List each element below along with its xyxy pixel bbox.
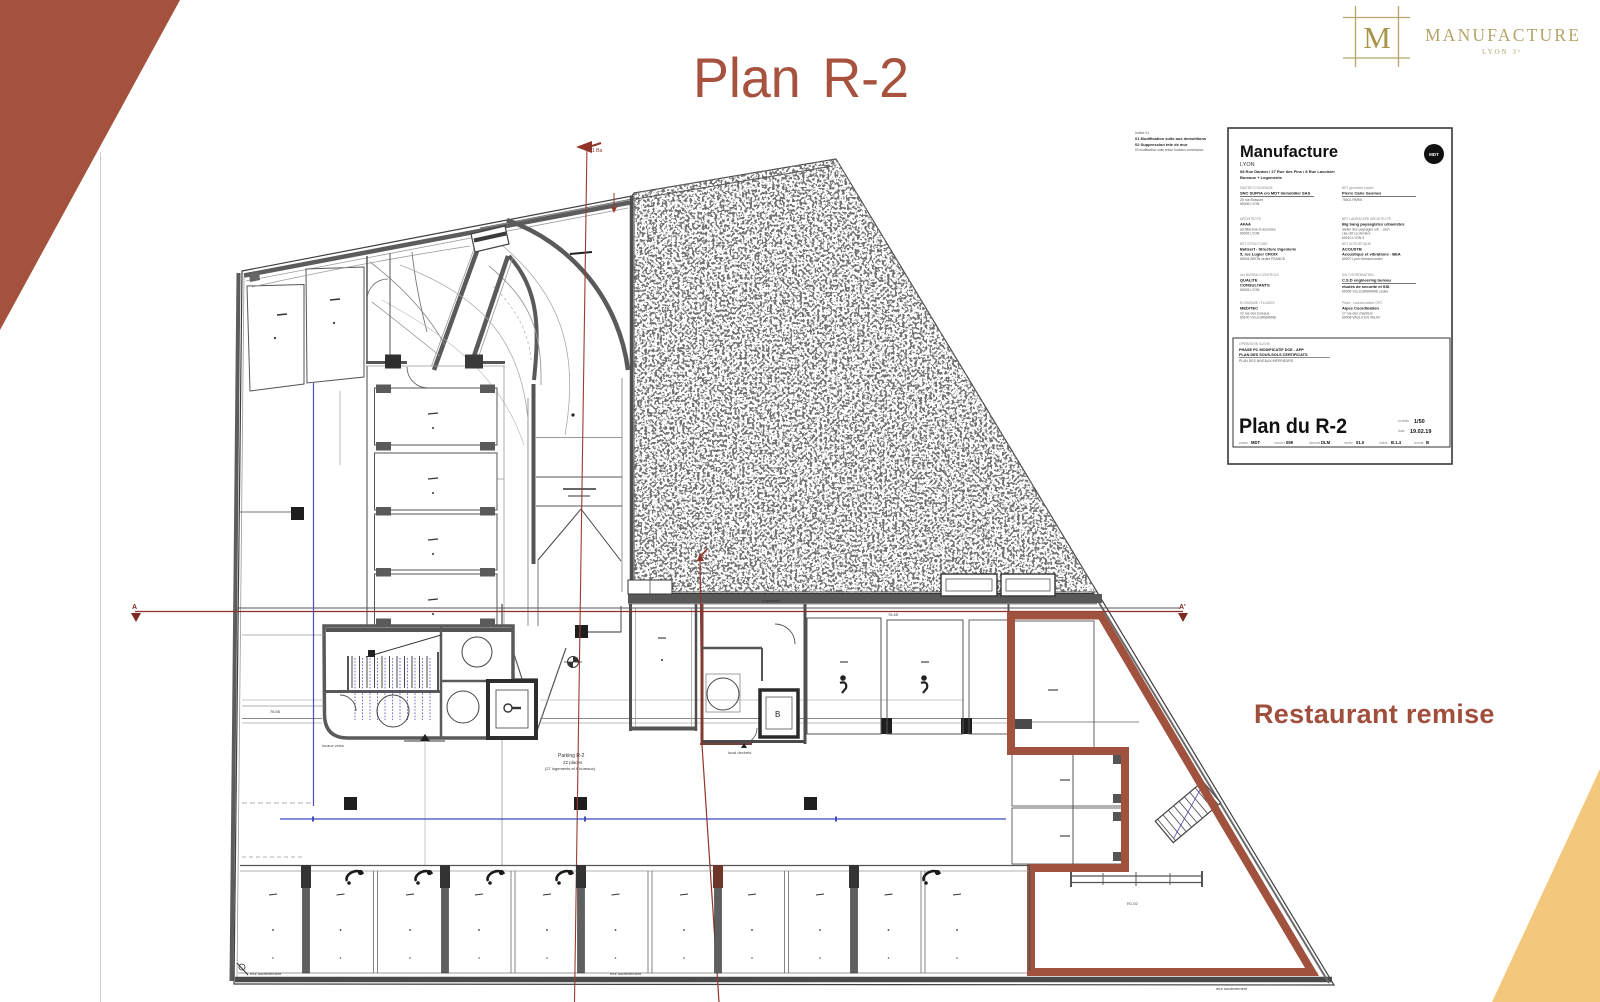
svg-text:03 modification suite retour b: 03 modification suite retour bureaux com… — [1135, 148, 1204, 152]
svg-text:22 places: 22 places — [563, 760, 583, 765]
svg-text:69004 BRON cedex FRANCE: 69004 BRON cedex FRANCE — [1240, 257, 1286, 261]
svg-text:MANUFACTURE: MANUFACTURE — [1425, 25, 1581, 45]
svg-text:1/50: 1/50 — [1414, 419, 1425, 425]
svg-text:69003 LYON: 69003 LYON — [1240, 288, 1260, 292]
svg-text:locaux velos: locaux velos — [322, 743, 344, 748]
svg-text:C.S.D engineering bureau: C.S.D engineering bureau — [1342, 278, 1391, 283]
svg-text:BET geometre expert: BET geometre expert — [1342, 186, 1373, 190]
svg-text:02 Suppression tete de mur: 02 Suppression tete de mur — [1135, 142, 1188, 147]
svg-text:1 Ba: 1 Ba — [592, 148, 603, 154]
svg-text:Plan du R-2: Plan du R-2 — [1239, 415, 1347, 438]
svg-text:BET ACOUSTIQUE: BET ACOUSTIQUE — [1342, 242, 1372, 246]
svg-text:mur soutenement: mur soutenement — [610, 971, 642, 976]
svg-text:75001 PARIS: 75001 PARIS — [1342, 198, 1363, 202]
svg-text:xxx BUREAU CONTROLE: xxx BUREAU CONTROLE — [1240, 273, 1280, 277]
svg-text:76.45: 76.45 — [888, 612, 899, 617]
svg-text:Pierre Caire Geomes: Pierre Caire Geomes — [1342, 191, 1382, 196]
svg-text:ARCHITECTE: ARCHITECTE — [1240, 217, 1262, 221]
svg-text:BET LANDSCAPE ARCHITECTE: BET LANDSCAPE ARCHITECTE — [1342, 217, 1392, 221]
svg-text:01.0: 01.0 — [1356, 440, 1365, 445]
svg-text:69005 VILLEURBANNE cedex: 69005 VILLEURBANNE cedex — [1342, 290, 1388, 294]
svg-text:SSI COORDINATION: SSI COORDINATION — [1342, 273, 1374, 277]
svg-text:mur soutenement: mur soutenement — [250, 971, 282, 976]
svg-text:phase: phase — [1239, 441, 1248, 445]
svg-text:69008 VAULX EN VELIN: 69008 VAULX EN VELIN — [1342, 316, 1380, 320]
svg-text:PLAN DES SOUS-SOLS CERTIFICATS: PLAN DES SOUS-SOLS CERTIFICATS — [1239, 353, 1308, 357]
svg-text:format: format — [1414, 441, 1423, 445]
svg-text:mur soutenement: mur soutenement — [1216, 986, 1248, 991]
svg-text:numero: numero — [1274, 441, 1285, 445]
svg-text:69100 VILLEURBANNE: 69100 VILLEURBANNE — [1240, 316, 1277, 320]
svg-text:LYON: LYON — [1240, 162, 1255, 168]
svg-text:surpresseur: surpresseur — [762, 599, 781, 603]
svg-text:76.55: 76.55 — [270, 709, 281, 714]
svg-text:MDT: MDT — [1429, 152, 1439, 157]
svg-text:Parking R-2: Parking R-2 — [558, 753, 585, 759]
svg-text:DLM: DLM — [1321, 440, 1331, 445]
svg-text:Manufacture: Manufacture — [1240, 143, 1338, 161]
svg-text:date: date — [1398, 429, 1405, 433]
svg-text:69210 LYON 3: 69210 LYON 3 — [1342, 236, 1364, 240]
svg-text:5, rue Lugier CROIX: 5, rue Lugier CROIX — [1240, 251, 1278, 256]
svg-text:Plan R-2: Plan R-2 — [693, 46, 909, 109]
svg-text:69006 LYON: 69006 LYON — [1240, 202, 1260, 206]
svg-text:ECONOMIE / FLUIDES: ECONOMIE / FLUIDES — [1240, 301, 1275, 305]
svg-text:Indice 01: Indice 01 — [1135, 131, 1149, 135]
svg-text:A: A — [132, 604, 137, 611]
svg-text:PHASE PC MODIFICATIF DCE - APP: PHASE PC MODIFICATIF DCE - APP — [1239, 348, 1304, 352]
svg-text:local dechets: local dechets — [728, 750, 751, 755]
svg-text:SNC SURYA c/o MDT Immobilier S: SNC SURYA c/o MDT Immobilier SAS — [1240, 191, 1311, 196]
svg-text:MAITRE D'OUVRAGE: MAITRE D'OUVRAGE — [1240, 186, 1274, 190]
svg-text:MEDITEC: MEDITEC — [1240, 306, 1258, 311]
svg-text:MDT: MDT — [1251, 440, 1261, 445]
svg-text:indice: indice — [1379, 441, 1388, 445]
svg-text:R1.02: R1.02 — [1127, 901, 1138, 906]
svg-text:verifie: verifie — [1344, 441, 1353, 445]
svg-text:etudes de securite et SSI: etudes de securite et SSI — [1342, 284, 1389, 289]
svg-text:B: B — [1426, 440, 1429, 445]
svg-text:AFAA: AFAA — [1240, 222, 1251, 227]
svg-text:B.1.4: B.1.4 — [1391, 440, 1402, 445]
svg-text:M: M — [1363, 20, 1391, 55]
svg-text:68 Rue Danton / 27 Rue des Pin: 68 Rue Danton / 27 Rue des Pins / 8 Rue … — [1240, 169, 1335, 174]
svg-text:BET STRUCTURE: BET STRUCTURE — [1240, 242, 1268, 246]
svg-text:01 Modification suite aux demo: 01 Modification suite aux demolitions — [1135, 136, 1207, 141]
svg-text:CONSULTANTS: CONSULTANTS — [1240, 282, 1270, 287]
svg-text:Acoustique et vibrations - BEA: Acoustique et vibrations - BEA — [1342, 251, 1401, 256]
svg-text:Alpes Coordination: Alpes Coordination — [1342, 306, 1379, 311]
svg-text:dessine: dessine — [1309, 441, 1321, 445]
svg-text:Bureaux + Logements: Bureaux + Logements — [1240, 175, 1283, 180]
svg-text:Big bang paysagistes urbaniste: Big bang paysagistes urbanistes — [1342, 222, 1405, 227]
svg-text:A': A' — [1179, 604, 1186, 611]
svg-text:echelle: echelle — [1398, 419, 1409, 423]
svg-text:(27 logements et 9 bureaux): (27 logements et 9 bureaux) — [545, 766, 596, 771]
svg-text:69002 LYON: 69002 LYON — [1240, 232, 1260, 236]
svg-text:059: 059 — [1286, 440, 1294, 445]
svg-text:Pilote - coordonnateur OPC: Pilote - coordonnateur OPC — [1342, 301, 1383, 305]
svg-text:LYON 3e: LYON 3e — [1482, 48, 1522, 56]
svg-text:19.02.19: 19.02.19 — [1410, 429, 1431, 435]
svg-text:OPERATION SUIVIE: OPERATION SUIVIE — [1239, 342, 1271, 346]
svg-text:B: B — [775, 710, 780, 719]
svg-text:Restaurant remise: Restaurant remise — [1254, 699, 1495, 729]
svg-text:PLAN DES NIVEAUX INFERIEURS: PLAN DES NIVEAUX INFERIEURS — [1239, 359, 1294, 363]
svg-text:69007 Lyon Gerland cedex: 69007 Lyon Gerland cedex — [1342, 257, 1383, 261]
